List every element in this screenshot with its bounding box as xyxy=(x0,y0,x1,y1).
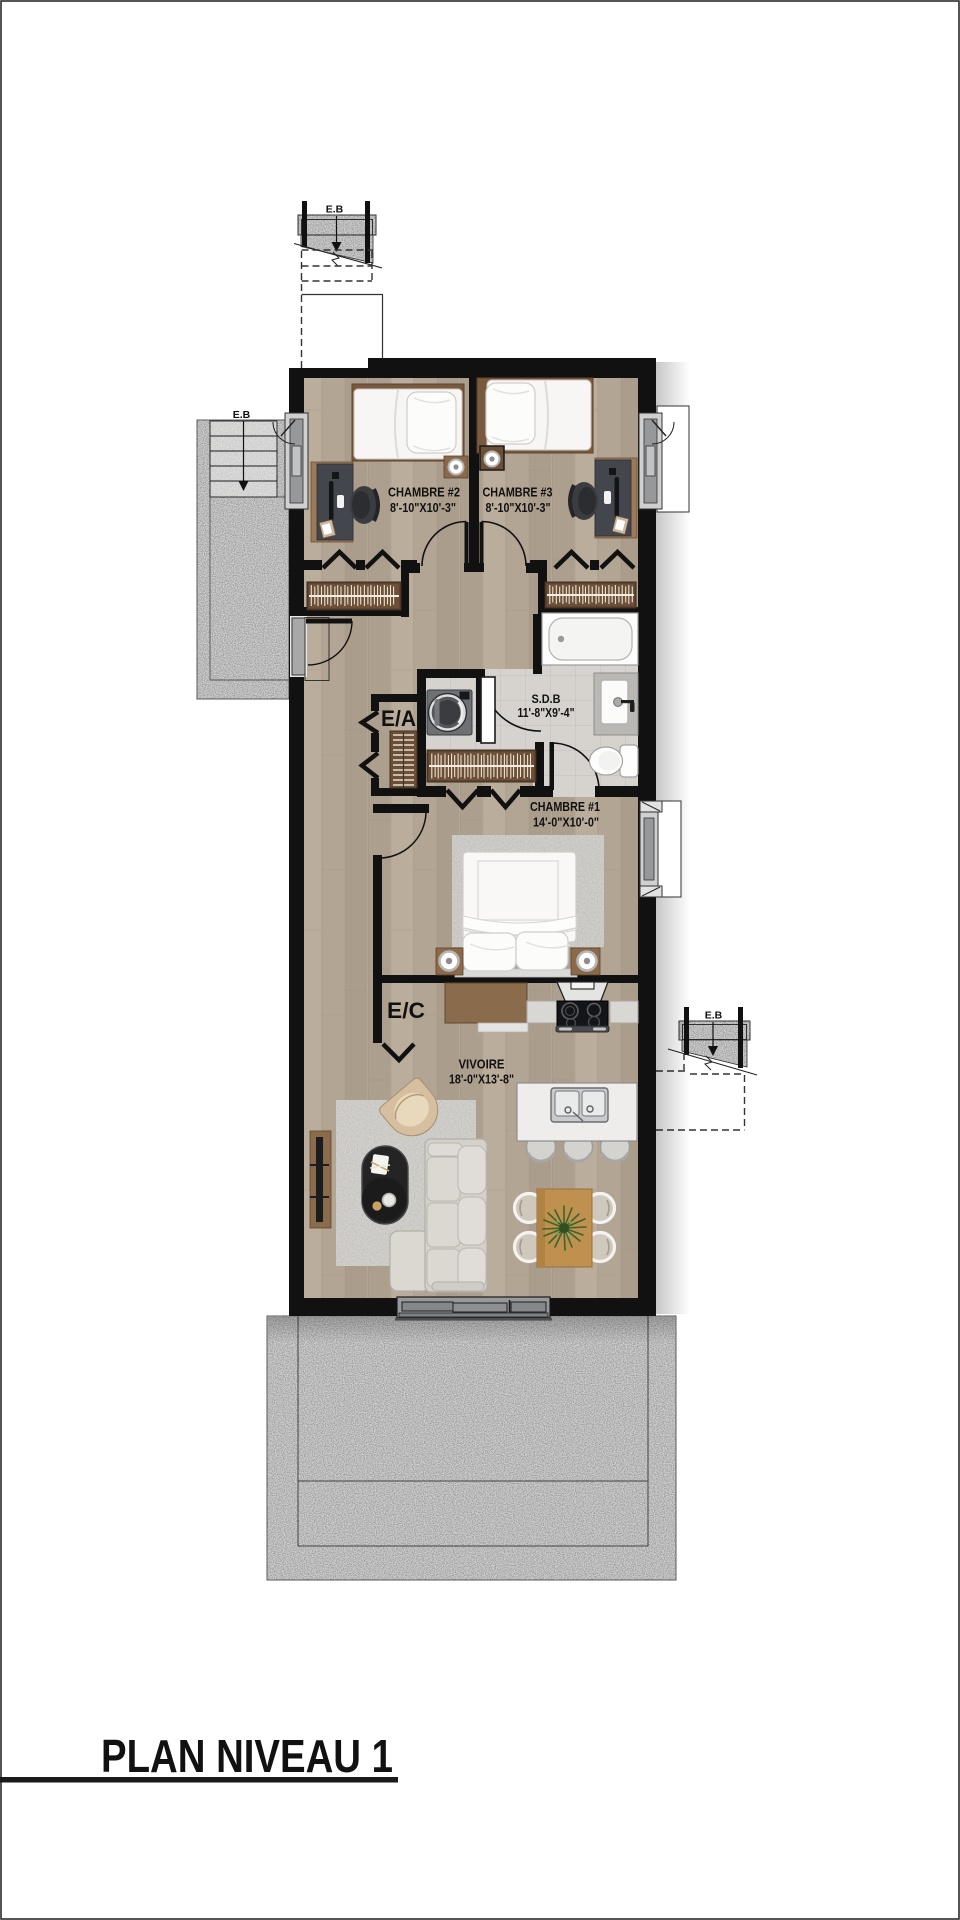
svg-text:8'-10"X10'-3": 8'-10"X10'-3" xyxy=(486,500,551,515)
svg-text:11'-8"X9'-4": 11'-8"X9'-4" xyxy=(518,706,575,720)
svg-text:CHAMBRE #3: CHAMBRE #3 xyxy=(483,485,553,500)
svg-text:E.B: E.B xyxy=(705,1010,723,1022)
svg-text:E.B: E.B xyxy=(233,409,251,421)
svg-text:CHAMBRE #2: CHAMBRE #2 xyxy=(388,485,460,500)
svg-text:E.B: E.B xyxy=(326,204,344,216)
svg-text:E/A: E/A xyxy=(381,706,416,731)
svg-text:S.D.B: S.D.B xyxy=(532,692,561,706)
svg-text:CHAMBRE #1: CHAMBRE #1 xyxy=(530,799,600,814)
svg-text:8'-10"X10'-3": 8'-10"X10'-3" xyxy=(390,500,456,515)
svg-text:E/C: E/C xyxy=(387,998,425,1023)
svg-text:18'-0"X13'-8": 18'-0"X13'-8" xyxy=(449,1072,514,1087)
svg-text:VIVOIRE: VIVOIRE xyxy=(459,1057,505,1072)
svg-text:PLAN NIVEAU 1: PLAN NIVEAU 1 xyxy=(101,1730,393,1782)
svg-text:14'-0"X10'-0": 14'-0"X10'-0" xyxy=(533,815,599,830)
